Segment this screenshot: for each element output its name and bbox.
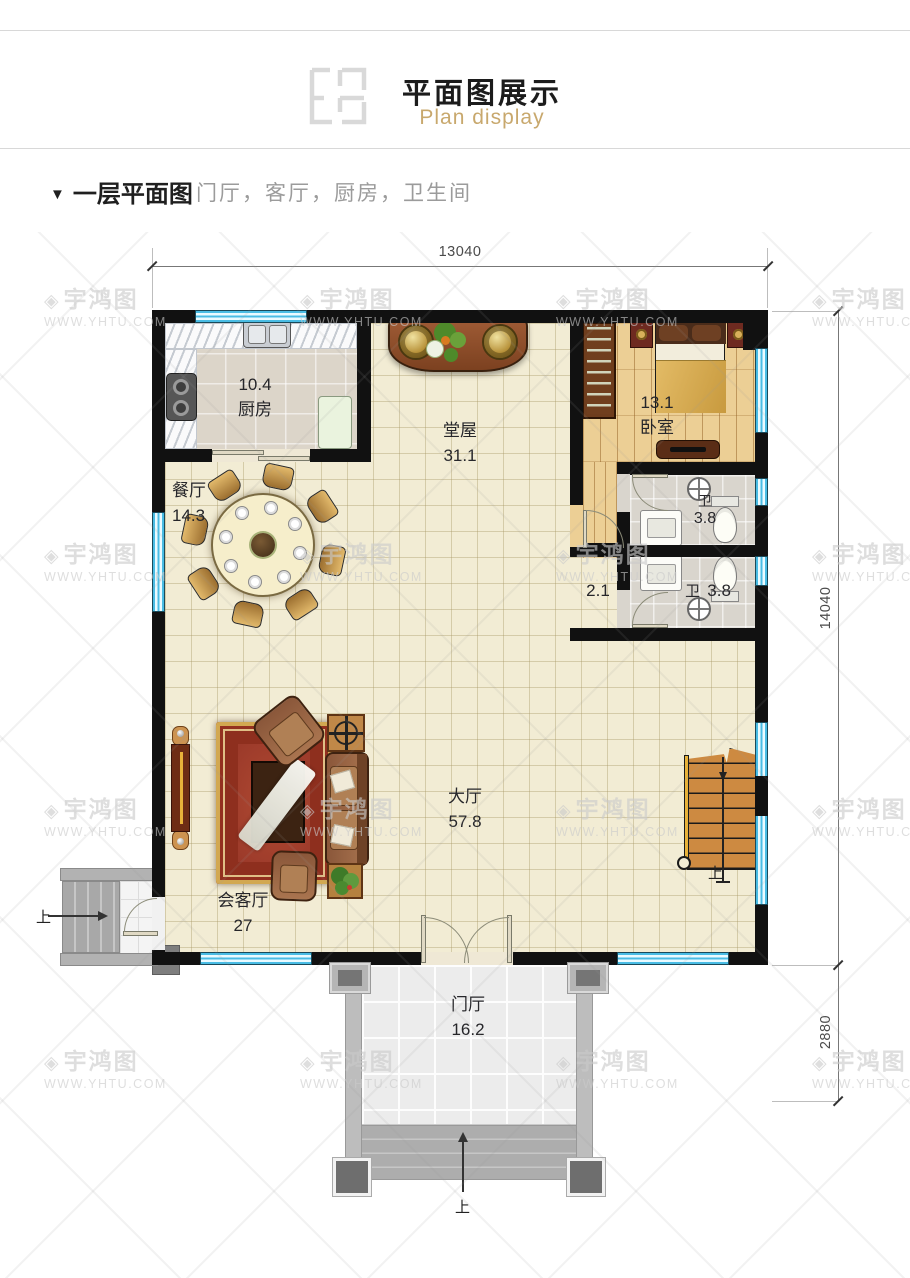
watermark-brand: 宇鸿图 [576,286,651,312]
side-table [327,714,365,752]
watermark-logo-icon: ◈ [812,546,827,567]
sink-icon [640,555,682,591]
sink-icon [640,510,682,546]
room-label-kitchen: 10.4 厨房 [215,372,295,422]
wall-cabinet [171,744,190,832]
watermark: ◈宇鸿图WWW.YHTU.COM [44,280,167,329]
sofa-back [357,754,367,864]
side-arrow-icon [98,911,108,921]
dimension-height: 14040 [818,578,834,638]
watermark: ◈宇鸿图WWW.YHTU.COM [44,1042,167,1091]
room-name: 卫 [685,583,700,600]
dimension-width: 13040 [420,244,500,260]
watermark: ◈宇鸿图WWW.YHTU.COM [812,790,910,839]
header-top-rule [0,30,910,31]
place-setting [277,570,291,584]
page-subtitle: Plan display [392,106,572,130]
watermark-url: WWW.YHTU.COM [812,315,910,329]
watermark-logo-icon: ◈ [300,291,315,312]
cabinet-handle [180,752,183,824]
watermark-logo-icon: ◈ [300,1053,315,1074]
room-name: 餐厅 [172,478,244,503]
sink-basin [647,518,676,538]
sink-basin-left [248,325,266,344]
room-area: 10.4 [215,372,295,397]
column-core [338,970,362,986]
cabinet-stud [177,838,184,845]
entry-arrow-icon [458,1132,468,1142]
watermark-url: WWW.YHTU.COM [812,825,910,839]
flowers [441,336,450,345]
dining-window [152,512,165,612]
place-setting [219,530,233,544]
fridge [318,396,352,449]
watermark-brand: 宇鸿图 [64,541,139,567]
bath-2-window [755,556,768,586]
tv-stand-slot [670,447,706,452]
bedroom-window [755,348,768,433]
wall-segment [152,310,165,965]
watermark: ◈宇鸿图WWW.YHTU.COM [812,280,910,329]
room-area: 31.1 [423,443,497,468]
watermark-brand: 宇鸿图 [832,796,907,822]
armchair-cushion [279,865,308,894]
extension-line [152,248,153,308]
column-core [576,970,600,986]
nightstand-left [630,322,653,348]
dimension-porch-depth: 2880 [818,1002,834,1062]
foyer-floor [362,965,576,1125]
pillow [692,325,721,341]
extension-line [767,248,768,308]
watermark-brand: 宇鸿图 [64,286,139,312]
room-area: 3.8 [707,581,731,600]
wall-segment [570,628,768,641]
header-bottom-rule [0,148,910,149]
triangle-marker-icon: ▼ [50,186,65,203]
dimension-line [152,266,768,267]
reception-window [200,952,312,965]
room-area: 2.1 [580,578,616,603]
flowers [450,332,466,348]
compass-cross [345,716,348,750]
side-steps-slab [60,953,158,966]
kitchen-sliding-door [212,450,264,455]
pillow [659,325,688,341]
place-setting [224,559,238,573]
bath-1-window [755,478,768,506]
watermark: ◈宇鸿图WWW.YHTU.COM [44,790,167,839]
room-name: 大厅 [428,784,502,809]
watermark-logo-icon: ◈ [44,801,59,822]
burner [173,400,189,416]
stove-icon [166,373,197,421]
wall-segment [755,776,768,816]
bath-2-door-opening [617,590,630,628]
porch-rail-right [576,965,593,1163]
wardrobe [582,322,616,419]
wardrobe-clothes [587,327,611,414]
watermark-brand: 宇鸿图 [64,1048,139,1074]
kitchen-window [195,310,307,323]
porch-rail-left [345,965,362,1163]
room-label-bedroom: 13.1 卧室 [621,390,693,440]
porch-column [333,1158,371,1196]
burner [173,379,189,395]
porch-column [568,963,608,993]
room-area: 27 [203,913,283,938]
watermark-logo-icon: ◈ [44,546,59,567]
armchair-cushion [267,710,315,757]
room-label-corridor: 2.1 [580,578,616,603]
porch-steps [350,1125,590,1180]
plant-berry [347,885,352,890]
watermark: ◈宇鸿图WWW.YHTU.COM [812,535,910,584]
wall-segment [357,310,371,462]
watermark-url: WWW.YHTU.COM [44,1077,167,1091]
watermark-brand: 宇鸿图 [64,796,139,822]
bath-1-door-opening [617,474,630,512]
brass-bowl-right [482,324,518,360]
section-heading: ▼一层平面图 [50,174,193,209]
watermark-logo-icon: ◈ [556,291,571,312]
watermark-brand: 宇鸿图 [832,1048,907,1074]
entry-direction-line [462,1140,464,1192]
nightstand-knob [636,329,647,340]
wall-segment [617,512,630,590]
sofa-pillow [330,824,354,847]
sofa [325,752,369,866]
sink-basin [647,564,676,584]
railing-curl [677,856,691,870]
side-up-label: 上 [36,906,51,927]
wall-segment [630,545,755,557]
room-label-foyer: 门厅 16.2 [431,992,505,1042]
stairs-up-label: 上 [708,862,723,883]
watermark-url: WWW.YHTU.COM [44,825,167,839]
nightstand-knob [733,329,744,340]
watermark-url: WWW.YHTU.COM [812,1077,910,1091]
hall-window [617,952,729,965]
stair-railing [684,755,689,865]
bed-pillow-row [656,322,726,344]
room-area: 57.8 [428,809,502,834]
room-label-tangwu: 堂屋 31.1 [423,418,497,468]
cabinet-stud [177,730,184,737]
entry-up-label: 上 [455,1196,470,1217]
section-title: 一层平面图 [73,181,193,208]
table-centerpiece [251,533,275,557]
room-name: 卫 [690,492,720,510]
room-area: 16.2 [431,1017,505,1042]
plant-pot [327,863,363,899]
flowers [444,348,458,362]
kitchen-sink [243,320,291,348]
porch-column [567,1158,605,1196]
watermark-brand: 宇鸿图 [832,286,907,312]
wall-segment [617,462,630,474]
dimension-line [838,965,839,1101]
watermark-logo-icon: ◈ [812,801,827,822]
wall-segment [743,310,768,350]
room-name: 卧室 [621,415,693,440]
section-subtitle: 门厅，客厅，厨房，卫生间 [196,177,472,207]
porch-column [330,963,370,993]
room-label-bath-1: 卫 3.8 [690,492,720,528]
side-direction-line [48,915,102,917]
place-setting [264,501,278,515]
plan-display-page: 平面图展示 Plan display ▼一层平面图 门厅，客厅，厨房，卫生间 [0,0,910,1278]
room-name: 堂屋 [423,418,497,443]
watermark-url: WWW.YHTU.COM [44,315,167,329]
room-name: 门厅 [431,992,505,1017]
watermark-url: WWW.YHTU.COM [44,570,167,584]
watermark-logo-icon: ◈ [812,291,827,312]
sink-basin-right [269,325,287,344]
watermark-brand: 宇鸿图 [320,286,395,312]
room-name: 厨房 [215,397,295,422]
extension-line [772,311,838,312]
watermark-brand: 宇鸿图 [832,541,907,567]
room-area: 3.8 [690,510,720,528]
place-setting [293,546,307,560]
room-label-hall: 大厅 57.8 [428,784,502,834]
room-area: 13.1 [621,390,693,415]
room-area: 14.3 [172,503,244,528]
extension-line [772,965,838,966]
room-label-bath-2: 卫 3.8 [680,578,736,604]
kitchen-sliding-door [258,456,310,461]
tv-stand [656,440,720,459]
room-label-dining: 餐厅 14.3 [172,478,244,528]
extension-line [772,1101,838,1102]
watermark-logo-icon: ◈ [44,1053,59,1074]
side-steps [62,881,120,953]
bedroom-door-opening [570,505,583,547]
watermark: ◈宇鸿图WWW.YHTU.COM [44,535,167,584]
watermark-logo-icon: ◈ [44,291,59,312]
dimension-line [838,311,839,965]
stair-arrow-icon [719,772,727,781]
floor-plan-icon [302,60,374,132]
room-name: 会客厅 [203,888,283,913]
side-steps-slab [60,868,156,881]
room-label-reception: 会客厅 27 [203,888,283,938]
